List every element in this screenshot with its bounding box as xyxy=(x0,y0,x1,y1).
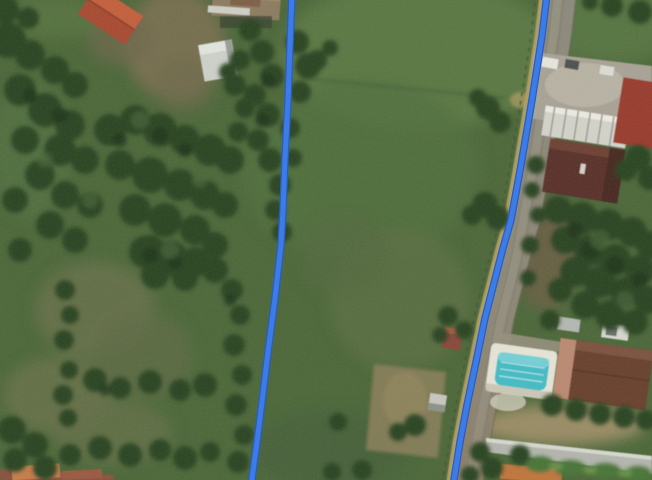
satellite-map-view[interactable] xyxy=(0,0,652,480)
satellite-imagery xyxy=(0,0,652,480)
image-noise xyxy=(0,0,652,480)
